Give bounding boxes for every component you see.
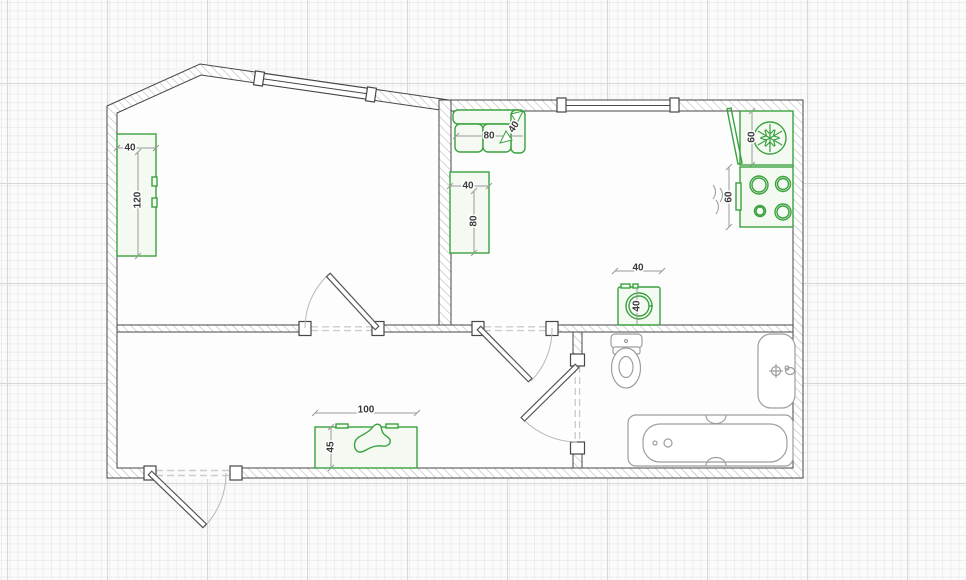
window-jamb — [254, 71, 265, 86]
door-jamb — [571, 354, 585, 366]
dim-shoe-cabinet-width: 100 — [358, 405, 375, 416]
dim-wardrobe-width: 40 — [124, 143, 136, 154]
kitchen-window[interactable] — [557, 98, 679, 112]
door-leaf — [148, 471, 206, 527]
door-jamb — [571, 442, 585, 454]
entrance-door[interactable] — [144, 466, 242, 528]
wardrobe-handle — [152, 177, 157, 186]
washer-button — [633, 284, 638, 288]
dim-washer-width: 40 — [632, 263, 644, 274]
window-jamb — [366, 87, 377, 102]
wall-bathroom-lower[interactable] — [573, 454, 582, 468]
dim-desk-width: 40 — [462, 181, 474, 192]
dim-desk-height: 80 — [469, 215, 480, 227]
wall-horizontal-right[interactable] — [558, 325, 793, 332]
door-swing-arc — [205, 473, 226, 526]
washer-button — [621, 284, 630, 288]
desk[interactable]: 40 80 — [447, 172, 492, 256]
window-jamb — [557, 98, 566, 112]
wall-horizontal-left[interactable] — [117, 325, 299, 332]
dim-wardrobe-height: 120 — [133, 191, 144, 208]
floor-plan-canvas: 40 120 80 40 40 80 60 — [0, 0, 966, 580]
dim-washer-depth: 40 — [632, 300, 643, 312]
stove-handle — [736, 183, 741, 210]
dim-sofa-width: 80 — [483, 131, 495, 142]
wardrobe[interactable]: 40 120 — [114, 134, 159, 259]
cabinet-tab — [336, 424, 348, 428]
dim-shoe-cabinet-depth: 45 — [326, 441, 337, 453]
door-jamb — [230, 466, 242, 480]
bathtub[interactable] — [628, 415, 793, 466]
toilet[interactable] — [611, 334, 642, 388]
floor-plan-drawing: 40 120 80 40 40 80 60 — [0, 0, 966, 580]
dim-stove-height: 60 — [724, 191, 735, 203]
cabinet-tab — [386, 424, 398, 428]
wardrobe-handle — [152, 198, 157, 207]
wall-bathroom-upper[interactable] — [573, 332, 582, 354]
sofa[interactable]: 80 40 — [453, 110, 525, 153]
window-jamb — [670, 98, 679, 112]
wall-horizontal-mid[interactable] — [384, 325, 472, 332]
wall-leftroom-kitchen[interactable] — [439, 100, 451, 332]
sink[interactable] — [758, 334, 795, 408]
dim-fridge-height: 60 — [747, 131, 758, 143]
